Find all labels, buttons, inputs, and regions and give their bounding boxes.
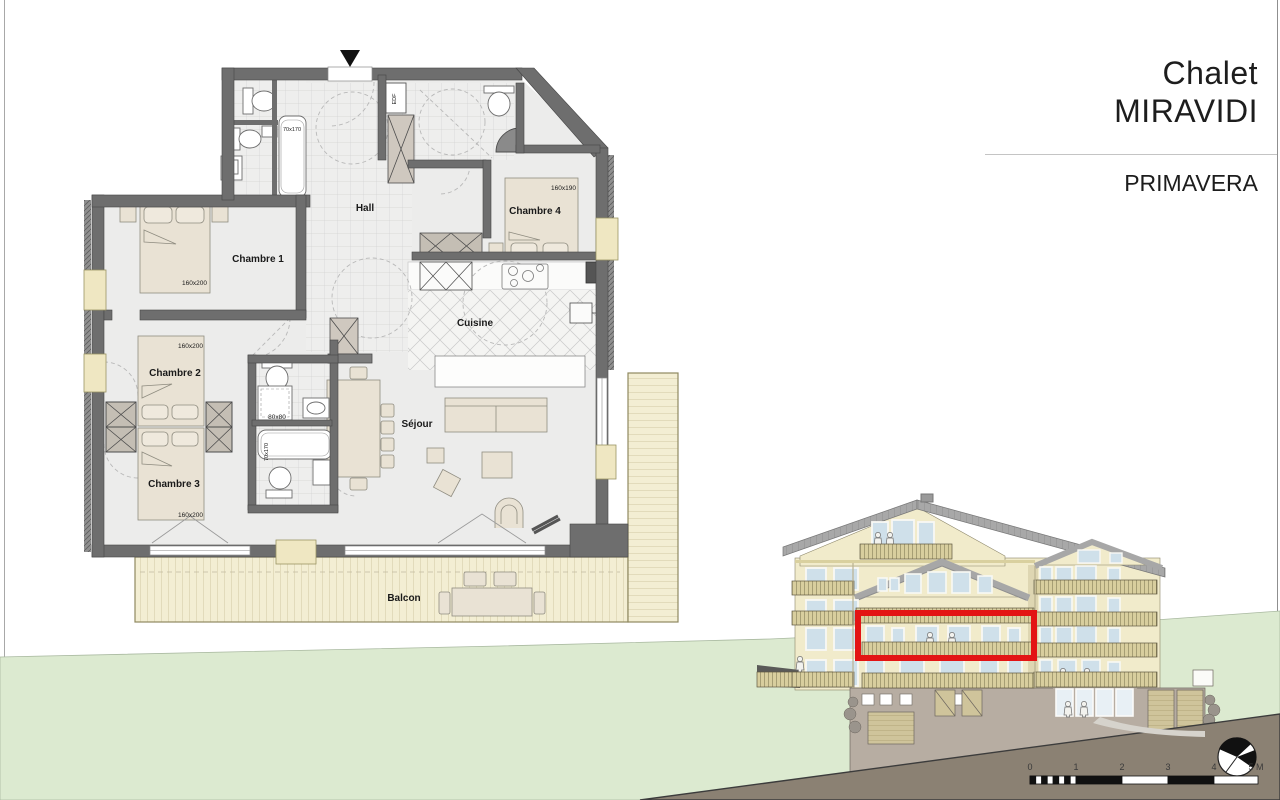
- label-sejour: Séjour: [401, 419, 432, 430]
- label-chambre-2: Chambre 2: [149, 368, 201, 379]
- label-chambre-3: Chambre 3: [148, 479, 200, 490]
- dim-bed-4: 160x190: [551, 185, 576, 192]
- label-chambre-1: Chambre 1: [232, 254, 284, 265]
- drawing-canvas: Hall Chambre 1 Chambre 2 Chambre 3 Chamb…: [0, 0, 1280, 800]
- label-cuisine: Cuisine: [457, 318, 494, 329]
- scale-label-3: 3: [1165, 762, 1170, 772]
- dim-shower: 80x80: [268, 414, 286, 421]
- hall-floor-upper: [306, 83, 380, 160]
- entrance-arrow-icon: [340, 50, 360, 67]
- dim-bathtub-2: 70x170: [264, 443, 270, 461]
- scale-label-1: 1: [1073, 762, 1078, 772]
- dim-bed-3: 160x200: [178, 512, 203, 519]
- scale-label-2: 2: [1119, 762, 1124, 772]
- dim-bed-1: 160x200: [182, 280, 207, 287]
- scale-label-0: 0: [1027, 762, 1032, 772]
- dim-bed-2: 160x200: [178, 343, 203, 350]
- scale-label-4: 4: [1211, 762, 1216, 772]
- label-chambre-4: Chambre 4: [509, 206, 561, 217]
- hall-floor: [306, 160, 412, 352]
- scale-label-5: 5 M: [1248, 762, 1263, 772]
- floor-plan: Hall Chambre 1 Chambre 2 Chambre 3 Chamb…: [84, 50, 678, 622]
- label-hall: Hall: [356, 203, 375, 214]
- dim-bathtub-1: 70x170: [283, 127, 301, 133]
- label-balcon: Balcon: [387, 593, 420, 604]
- plan-sheet: Chalet MIRAVIDI PRIMAVERA: [0, 0, 1280, 800]
- scale-segments: [1030, 776, 1258, 784]
- label-edf: EDF: [392, 93, 398, 105]
